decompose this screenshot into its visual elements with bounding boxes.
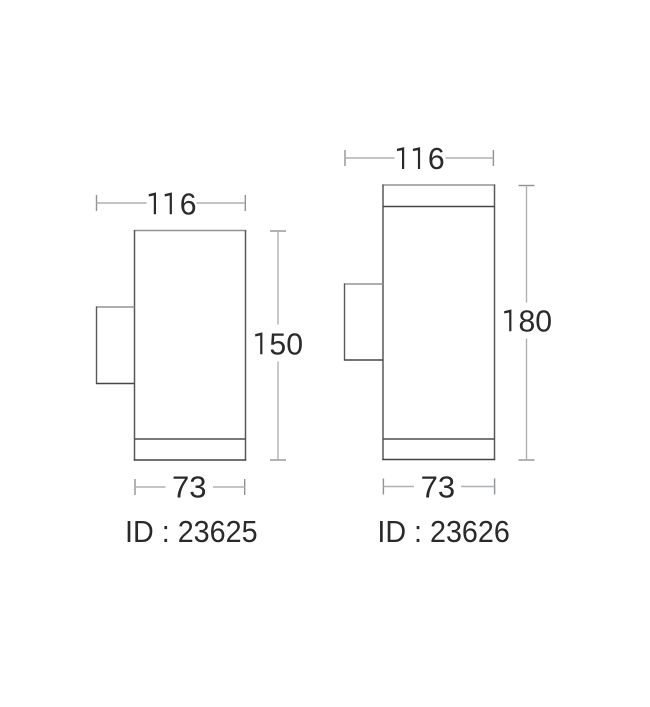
svg-text:ID : 23626: ID : 23626 [377,516,510,549]
svg-text:6: 6 [428,143,445,176]
svg-text:6: 6 [180,188,197,221]
svg-text:80: 80 [519,305,553,338]
svg-text:73: 73 [421,471,456,504]
svg-text:73: 73 [172,472,207,505]
svg-text:ID : 23625: ID : 23625 [125,516,258,549]
svg-text:50: 50 [269,328,303,361]
